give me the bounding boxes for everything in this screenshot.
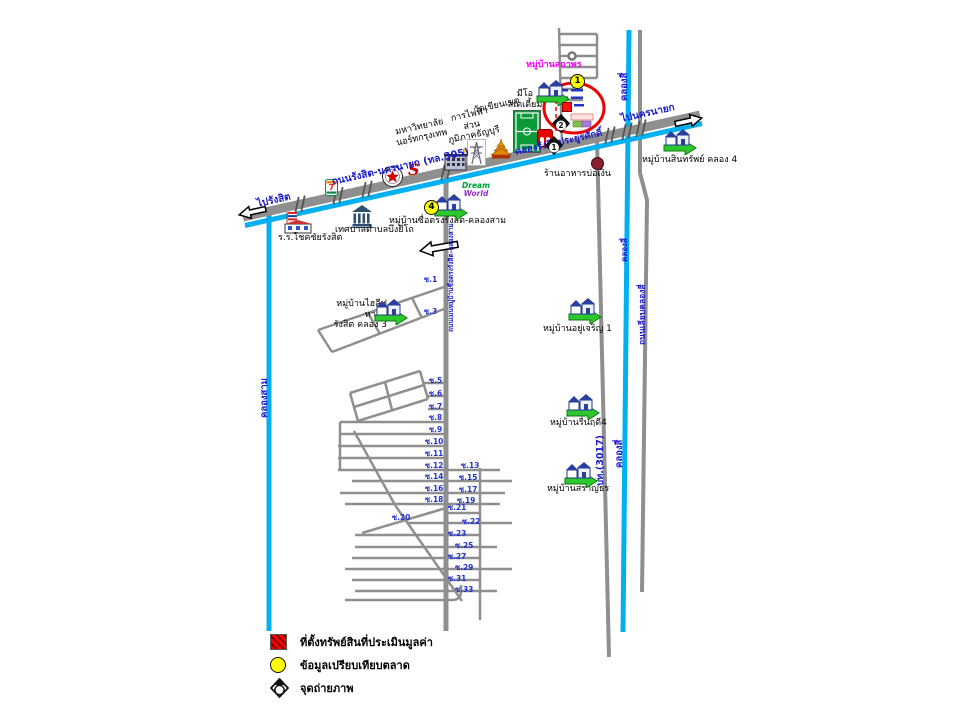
soi-label: ซ.22 — [462, 516, 480, 528]
village-houses-icon-saranthorn — [563, 461, 599, 488]
camera-icon — [270, 678, 289, 699]
legend-comparable-label: ข้อมูลเปรียบเทียบตลาด — [300, 656, 410, 674]
soi-label: ซ.18 — [425, 494, 443, 506]
map-label: หมู่บ้านสินทรัพย์ คลอง 4 — [642, 155, 737, 166]
village-houses-icon-sinsap-khlong4 — [662, 128, 698, 155]
soi-label: ซ.20 — [392, 512, 410, 524]
power-pylon-icon — [467, 139, 486, 166]
map-label: หมู่บ้านสถาพร — [526, 60, 582, 71]
temple-icon — [488, 138, 514, 159]
map-label: คลองสี่ — [620, 238, 629, 262]
legend: ที่ตั้งทรัพย์สินที่ประเมินมูลค่า ข้อมูลเ… — [270, 633, 433, 702]
village-houses-icon-hilife-town — [373, 298, 409, 325]
soi-label: ซ.1 — [424, 274, 437, 286]
fine-print-smudge — [582, 121, 591, 127]
camera-point-marker-1: 1 — [545, 136, 563, 156]
soi-label: ซ.5 — [429, 375, 442, 387]
comparable-circle-icon — [270, 657, 286, 673]
property-location-marker — [562, 102, 572, 112]
soi-label: ซ.11 — [425, 448, 443, 460]
soi-label: ซ.10 — [425, 436, 443, 448]
soi-label: ซ.8 — [429, 412, 442, 424]
camera-point-marker-2: 2 — [552, 114, 570, 134]
comparable-marker-4: 4 — [424, 200, 439, 215]
comparable-marker-1: 1 — [570, 74, 585, 89]
map-label: คลองสาม — [259, 378, 270, 418]
soi-label: ซ.13 — [461, 460, 479, 472]
map-label: ร.ร.โชคชัยรังสิต — [278, 233, 342, 244]
suetrong-soi-grid — [318, 287, 512, 620]
legend-property-label: ที่ตั้งทรัพย์สินที่ประเมินมูลค่า — [300, 633, 433, 651]
legend-camera-label: จุดถ่ายภาพ — [300, 679, 354, 697]
school-icon — [283, 211, 313, 235]
legend-row-camera: จุดถ่ายภาพ — [270, 679, 433, 697]
soi-label: ซ.33 — [455, 584, 473, 596]
map-label: คลองสี่ — [614, 440, 625, 468]
fine-print-smudge — [573, 121, 582, 127]
fine-print-smudge — [571, 114, 593, 120]
soi-label: ซ.21 — [448, 502, 466, 514]
legend-row-property: ที่ตั้งทรัพย์สินที่ประเมินมูลค่า — [270, 633, 433, 651]
svg-text:1: 1 — [551, 143, 556, 152]
village-houses-icon-yu-charoen-1 — [567, 297, 603, 324]
property-square-icon — [270, 634, 287, 650]
village-houses-icon-ruen-rudee-4 — [565, 393, 601, 420]
map-label: คลองสี่ — [619, 73, 630, 101]
map-canvas: 7 S — [0, 0, 960, 720]
map-label: หมู่บ้านอยู่เจริญ 1 — [543, 324, 612, 335]
soi-label: ซ.15 — [459, 472, 477, 484]
soi-label: ซ.14 — [425, 471, 443, 483]
legend-row-comparable: ข้อมูลเปรียบเทียบตลาด — [270, 656, 433, 674]
svg-text:2: 2 — [558, 121, 563, 130]
soi-label: ซ.3 — [424, 306, 437, 318]
soi-label: ซ.23 — [448, 528, 466, 540]
soi-label: ซ.9 — [429, 424, 442, 436]
map-label: ถนนเลียบคลองสี่ — [638, 284, 648, 345]
map-label: ร้านอาหารบ่อเงิน — [544, 169, 611, 180]
map-label: ถนนเมนหมู่บ้านซื่อตรงรังสิต-คลองสาม — [448, 223, 456, 332]
soi-label: ซ.6 — [429, 388, 442, 400]
